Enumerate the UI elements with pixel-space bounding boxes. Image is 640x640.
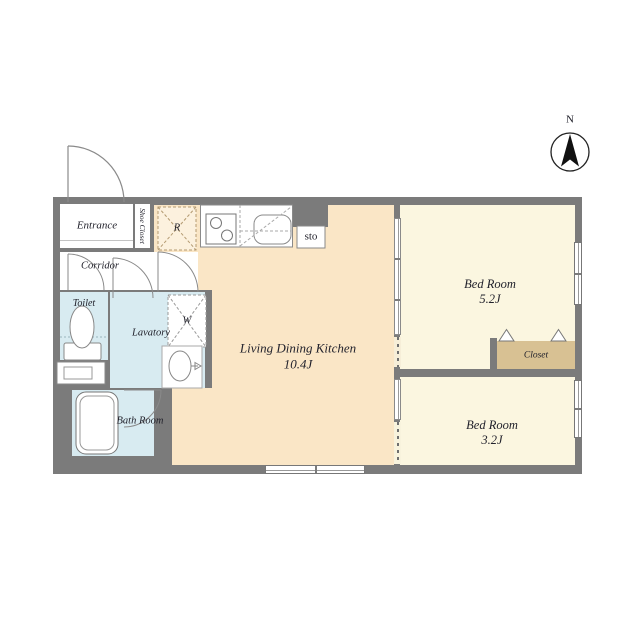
north-label: N xyxy=(566,113,574,126)
sliding-door-tick xyxy=(395,299,400,301)
dashed-track xyxy=(397,422,399,464)
window-bedroom2 xyxy=(574,380,582,438)
bedroom1-name: Bed Room xyxy=(464,277,516,292)
shoe-closet-label: Shoe Closet xyxy=(138,208,146,244)
sliding-door-bedroom1 xyxy=(394,218,401,335)
ldk-size: 10.4J xyxy=(240,356,356,372)
dashed-track xyxy=(397,337,399,367)
wall-lavatory-top xyxy=(108,290,207,292)
storage-label: sto xyxy=(305,230,318,243)
window-ldk-south xyxy=(265,465,365,474)
sliding-door-line xyxy=(398,219,399,334)
wall-closet-left xyxy=(490,338,497,369)
window-sash xyxy=(575,408,581,410)
bedroom2-label: Bed Room 3.2J xyxy=(466,418,518,448)
sliding-door-tick xyxy=(395,258,400,260)
toilet-label: Toilet xyxy=(73,298,95,310)
entrance-door-swing xyxy=(68,146,124,202)
entrance-label: Entrance xyxy=(77,219,117,232)
ldk-name: Living Dining Kitchen xyxy=(240,340,356,356)
sliding-door-track-bedroom1 xyxy=(394,337,401,367)
window-sash xyxy=(575,273,581,275)
wall-above-storage xyxy=(293,205,328,227)
bedroom1-size: 5.2J xyxy=(464,292,516,307)
floor-plan: Entrance Shoe Closet Corridor Toilet Lav… xyxy=(0,0,640,640)
entrance-step-line xyxy=(60,240,133,241)
north-arrow-icon xyxy=(551,133,589,171)
sliding-door-line xyxy=(398,380,399,419)
bedroom2-name: Bed Room xyxy=(466,418,518,433)
bath-room-label: Bath Room xyxy=(117,416,164,429)
bedroom1-label: Bed Room 5.2J xyxy=(464,277,516,307)
lavatory-label: Lavatory xyxy=(132,328,170,341)
refrigerator-label: R xyxy=(174,223,180,236)
sliding-door-track-bedroom2 xyxy=(394,422,401,464)
closet-label: Closet xyxy=(524,350,548,361)
bedroom2-size: 3.2J xyxy=(466,433,518,448)
washing-machine-label: W xyxy=(183,316,192,329)
window-bedroom1 xyxy=(574,242,582,305)
corridor-label: Corridor xyxy=(81,261,119,274)
wall-lavatory-right xyxy=(205,290,212,388)
wall-bath-side xyxy=(154,388,172,474)
ldk-label: Living Dining Kitchen 10.4J xyxy=(240,340,356,371)
window-sash xyxy=(315,466,317,473)
sliding-door-bedroom2 xyxy=(394,379,401,420)
